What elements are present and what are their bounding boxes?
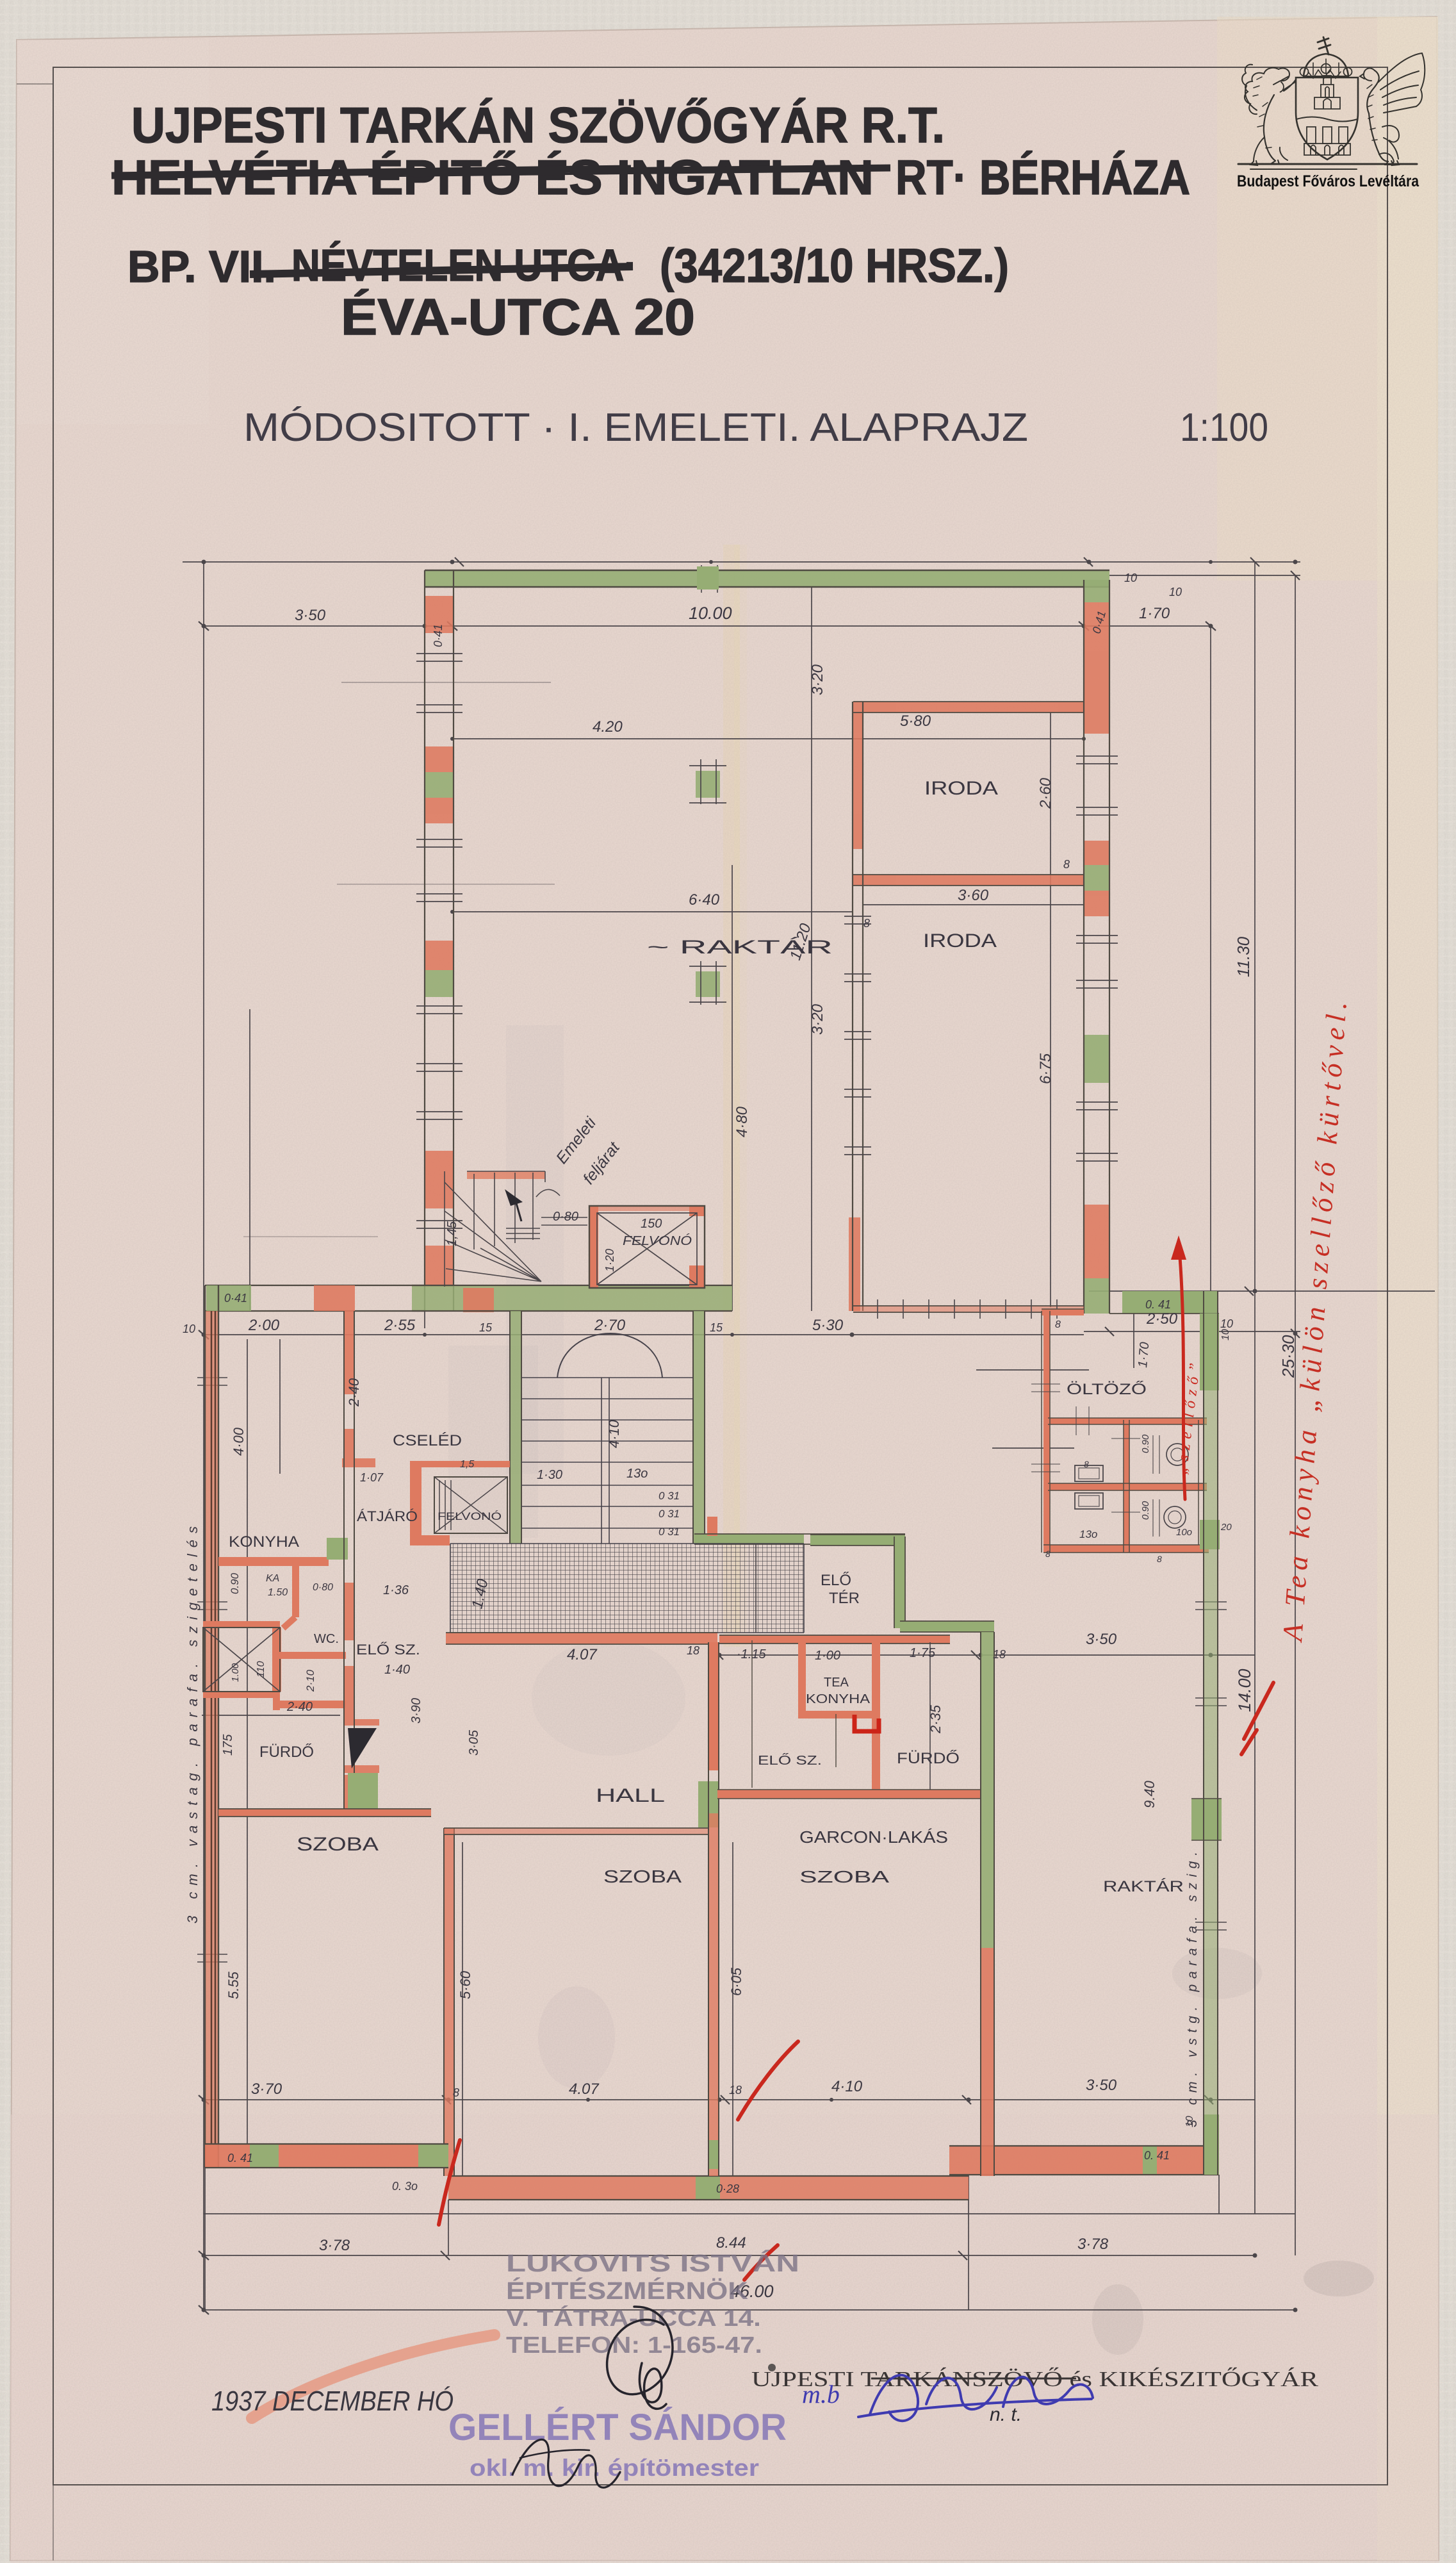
svg-text:SZOBA: SZOBA — [603, 1867, 682, 1886]
svg-text:5·30: 5·30 — [812, 1317, 844, 1334]
svg-text:TÉR: TÉR — [829, 1590, 860, 1607]
svg-text:CSELÉD: CSELÉD — [393, 1432, 462, 1449]
svg-text:3·20: 3·20 — [809, 1003, 826, 1035]
svg-text:FELVONÓ: FELVONÓ — [438, 1510, 502, 1522]
svg-text:1.50: 1.50 — [268, 1587, 288, 1598]
svg-text:RT· BÉRHÁZA: RT· BÉRHÁZA — [896, 151, 1190, 205]
svg-text:1·40: 1·40 — [384, 1663, 410, 1677]
svg-text:0 31: 0 31 — [658, 1490, 680, 1502]
svg-text:150: 150 — [641, 1217, 662, 1231]
svg-text:TELEFON: 1-165-47.: TELEFON: 1-165-47. — [506, 2332, 762, 2358]
svg-text:4·10: 4·10 — [606, 1419, 622, 1448]
svg-text:·1.15: ·1.15 — [737, 1647, 766, 1661]
svg-text:3·90: 3·90 — [409, 1698, 423, 1724]
svg-text:4·10: 4·10 — [831, 2078, 863, 2095]
svg-text:0 31: 0 31 — [658, 1526, 680, 1538]
svg-text:ÉPITÉSZMÉRNÖK: ÉPITÉSZMÉRNÖK — [506, 2277, 749, 2305]
svg-text:1:100: 1:100 — [1180, 406, 1268, 450]
svg-text:IRODA: IRODA — [924, 778, 998, 799]
svg-text:BP. VII.: BP. VII. — [127, 242, 276, 292]
svg-text:3·60: 3·60 — [958, 887, 989, 904]
svg-text:8: 8 — [453, 2086, 459, 2099]
svg-text:8.44: 8.44 — [716, 2234, 746, 2252]
svg-text:11.30: 11.30 — [1234, 936, 1253, 977]
svg-text:8: 8 — [1063, 858, 1070, 871]
svg-text:HELVÉTIA ÉPITŐ ÉS INGATLAN: HELVÉTIA ÉPITŐ ÉS INGATLAN — [111, 151, 874, 205]
svg-text:KONYHA: KONYHA — [229, 1533, 299, 1551]
svg-text:0.90: 0.90 — [1140, 1434, 1151, 1453]
svg-text:0 31: 0 31 — [658, 1508, 680, 1520]
svg-text:2·55: 2·55 — [384, 1317, 416, 1334]
svg-text:1·70: 1·70 — [1136, 1342, 1152, 1369]
svg-text:10o: 10o — [1176, 1527, 1192, 1538]
svg-text:ÁTJÁRÓ: ÁTJÁRÓ — [357, 1508, 418, 1524]
svg-text:2·50: 2·50 — [1146, 1310, 1178, 1328]
svg-text:10: 10 — [1220, 1329, 1231, 1340]
svg-text:0·41: 0·41 — [224, 1292, 247, 1305]
svg-text:3·70: 3·70 — [251, 2081, 282, 2098]
svg-text:1.00: 1.00 — [230, 1663, 241, 1682]
svg-text:GELLÉRT SÁNDOR: GELLÉRT SÁNDOR — [448, 2407, 787, 2448]
svg-text:0. 41: 0. 41 — [227, 2152, 253, 2164]
svg-text:3·05: 3·05 — [467, 1729, 481, 1756]
svg-text:13o: 13o — [1079, 1528, 1097, 1540]
svg-text:FÜRDŐ: FÜRDŐ — [259, 1743, 314, 1761]
svg-text:ÉVA-UTCA 20: ÉVA-UTCA 20 — [341, 288, 695, 345]
svg-text:WC.: WC. — [314, 1632, 339, 1646]
svg-text:2·35: 2·35 — [928, 1704, 944, 1734]
svg-text:8: 8 — [1084, 1459, 1089, 1469]
svg-text:ELŐ: ELŐ — [821, 1572, 851, 1589]
svg-text:LUKOVITS ISTVÁN: LUKOVITS ISTVÁN — [506, 2249, 799, 2277]
svg-text:1·07: 1·07 — [360, 1471, 384, 1484]
svg-text:3·50: 3·50 — [1086, 2077, 1117, 2094]
svg-text:0.90: 0.90 — [1140, 1501, 1151, 1520]
svg-text:ELŐ SZ.: ELŐ SZ. — [356, 1642, 420, 1658]
svg-text:m.b: m.b — [802, 2380, 840, 2409]
svg-text:~ RAKTÁR: ~ RAKTÁR — [647, 937, 833, 958]
svg-text:4.20: 4.20 — [593, 718, 623, 736]
svg-text:15: 15 — [710, 1321, 723, 1334]
svg-text:SZOBA: SZOBA — [799, 1867, 890, 1886]
svg-text:6·75: 6·75 — [1037, 1053, 1054, 1084]
svg-text:GARCON·LAKÁS: GARCON·LAKÁS — [799, 1827, 948, 1847]
svg-text:18: 18 — [993, 1648, 1006, 1661]
svg-text:18: 18 — [687, 1644, 699, 1657]
svg-text:(34213/10 HRSZ.): (34213/10 HRSZ.) — [660, 239, 1009, 292]
svg-text:10: 10 — [1220, 1317, 1233, 1330]
svg-text:KONYHA: KONYHA — [806, 1692, 871, 1706]
svg-text:4.07: 4.07 — [567, 1646, 598, 1663]
svg-text:110: 110 — [256, 1661, 266, 1677]
svg-text:0·80: 0·80 — [313, 1582, 333, 1593]
svg-text:5·60: 5·60 — [457, 1970, 473, 1999]
svg-text:TEA: TEA — [824, 1676, 849, 1690]
svg-text:RAKTÁR: RAKTÁR — [1103, 1878, 1184, 1895]
svg-text:6·05: 6·05 — [728, 1967, 744, 1996]
svg-text:0·80: 0·80 — [553, 1210, 578, 1224]
svg-text:ÖLTÖZŐ: ÖLTÖZŐ — [1067, 1381, 1147, 1398]
svg-text:2·10: 2·10 — [304, 1669, 316, 1692]
svg-text:3·50: 3·50 — [295, 607, 326, 624]
svg-text:4·00: 4·00 — [231, 1427, 247, 1456]
svg-text:ELŐ SZ.: ELŐ SZ. — [758, 1753, 822, 1768]
svg-text:18: 18 — [729, 2084, 742, 2097]
svg-text:1·00: 1·00 — [815, 1649, 840, 1663]
svg-text:13o: 13o — [626, 1467, 648, 1481]
svg-text:2·60: 2·60 — [1037, 777, 1054, 809]
svg-text:1937 DECEMBER HÓ: 1937 DECEMBER HÓ — [211, 2386, 454, 2417]
svg-text:FÜRDŐ: FÜRDŐ — [897, 1750, 960, 1767]
svg-text:3·78: 3·78 — [319, 2237, 350, 2254]
svg-text:8: 8 — [1157, 1554, 1162, 1564]
svg-text:1,45: 1,45 — [445, 1221, 459, 1246]
svg-text:1,5: 1,5 — [460, 1459, 474, 1470]
svg-text:2·70: 2·70 — [594, 1317, 626, 1334]
svg-text:V. TÁTRA-UCCA 14.: V. TÁTRA-UCCA 14. — [506, 2305, 761, 2331]
svg-text:KA: KA — [266, 1573, 279, 1584]
svg-text:3·50: 3·50 — [1086, 1631, 1117, 1648]
svg-text:2·40: 2·40 — [346, 1378, 362, 1407]
svg-text:1·30: 1·30 — [537, 1468, 562, 1482]
svg-text:0. 41: 0. 41 — [1145, 1298, 1171, 1311]
svg-text:0·28: 0·28 — [716, 2182, 739, 2195]
svg-text:n. t.: n. t. — [990, 2404, 1022, 2425]
svg-text:4·80: 4·80 — [733, 1106, 751, 1137]
svg-text:0·41: 0·41 — [432, 624, 445, 647]
svg-text:Budapest Főváros Levéltára: Budapest Főváros Levéltára — [1237, 172, 1419, 190]
svg-text:MÓDOSITOTT · I. EMELETI. ALAPR: MÓDOSITOTT · I. EMELETI. ALAPRAJZ — [243, 406, 1028, 450]
svg-text:1·75: 1·75 — [910, 1646, 936, 1660]
svg-text:SZOBA: SZOBA — [297, 1834, 379, 1855]
svg-text:10: 10 — [183, 1323, 195, 1335]
svg-text:10: 10 — [1124, 572, 1137, 584]
svg-text:2·40: 2·40 — [286, 1700, 313, 1714]
svg-text:1·20: 1·20 — [603, 1249, 616, 1272]
svg-text:1·36: 1·36 — [383, 1583, 409, 1597]
svg-text:5.55: 5.55 — [225, 1971, 241, 1999]
svg-text:0. 41: 0. 41 — [1144, 2149, 1170, 2162]
svg-text:8: 8 — [863, 917, 870, 930]
svg-text:20: 20 — [1220, 1522, 1232, 1533]
svg-text:HALL: HALL — [596, 1785, 665, 1806]
svg-text:1·70: 1·70 — [1139, 605, 1170, 622]
svg-text:10.00: 10.00 — [689, 604, 732, 623]
svg-text:14.00: 14.00 — [1235, 1669, 1254, 1712]
svg-text:0.90: 0.90 — [229, 1572, 241, 1594]
svg-text:8: 8 — [1055, 1319, 1061, 1330]
svg-text:10: 10 — [1169, 586, 1182, 598]
svg-text:UJPESTI TARKÁN SZÖVŐGYÁR R.T.: UJPESTI TARKÁN SZÖVŐGYÁR R.T. — [131, 97, 945, 153]
svg-text:8: 8 — [1045, 1549, 1051, 1559]
svg-text:3·20: 3·20 — [809, 664, 826, 695]
svg-text:6·40: 6·40 — [689, 891, 720, 909]
svg-text:0. 3o: 0. 3o — [392, 2180, 418, 2193]
svg-text:2·00: 2·00 — [248, 1317, 280, 1334]
svg-text:5·80: 5·80 — [900, 713, 931, 730]
svg-text:okl. m. kir. építömester: okl. m. kir. építömester — [470, 2455, 759, 2481]
svg-text:3·78: 3·78 — [1077, 2236, 1109, 2253]
svg-text:FELVONÓ: FELVONÓ — [623, 1233, 692, 1248]
svg-text:9.40: 9.40 — [1141, 1780, 1157, 1808]
svg-text:15: 15 — [479, 1321, 493, 1334]
svg-text:175: 175 — [221, 1734, 235, 1756]
svg-text:IRODA: IRODA — [923, 930, 997, 952]
